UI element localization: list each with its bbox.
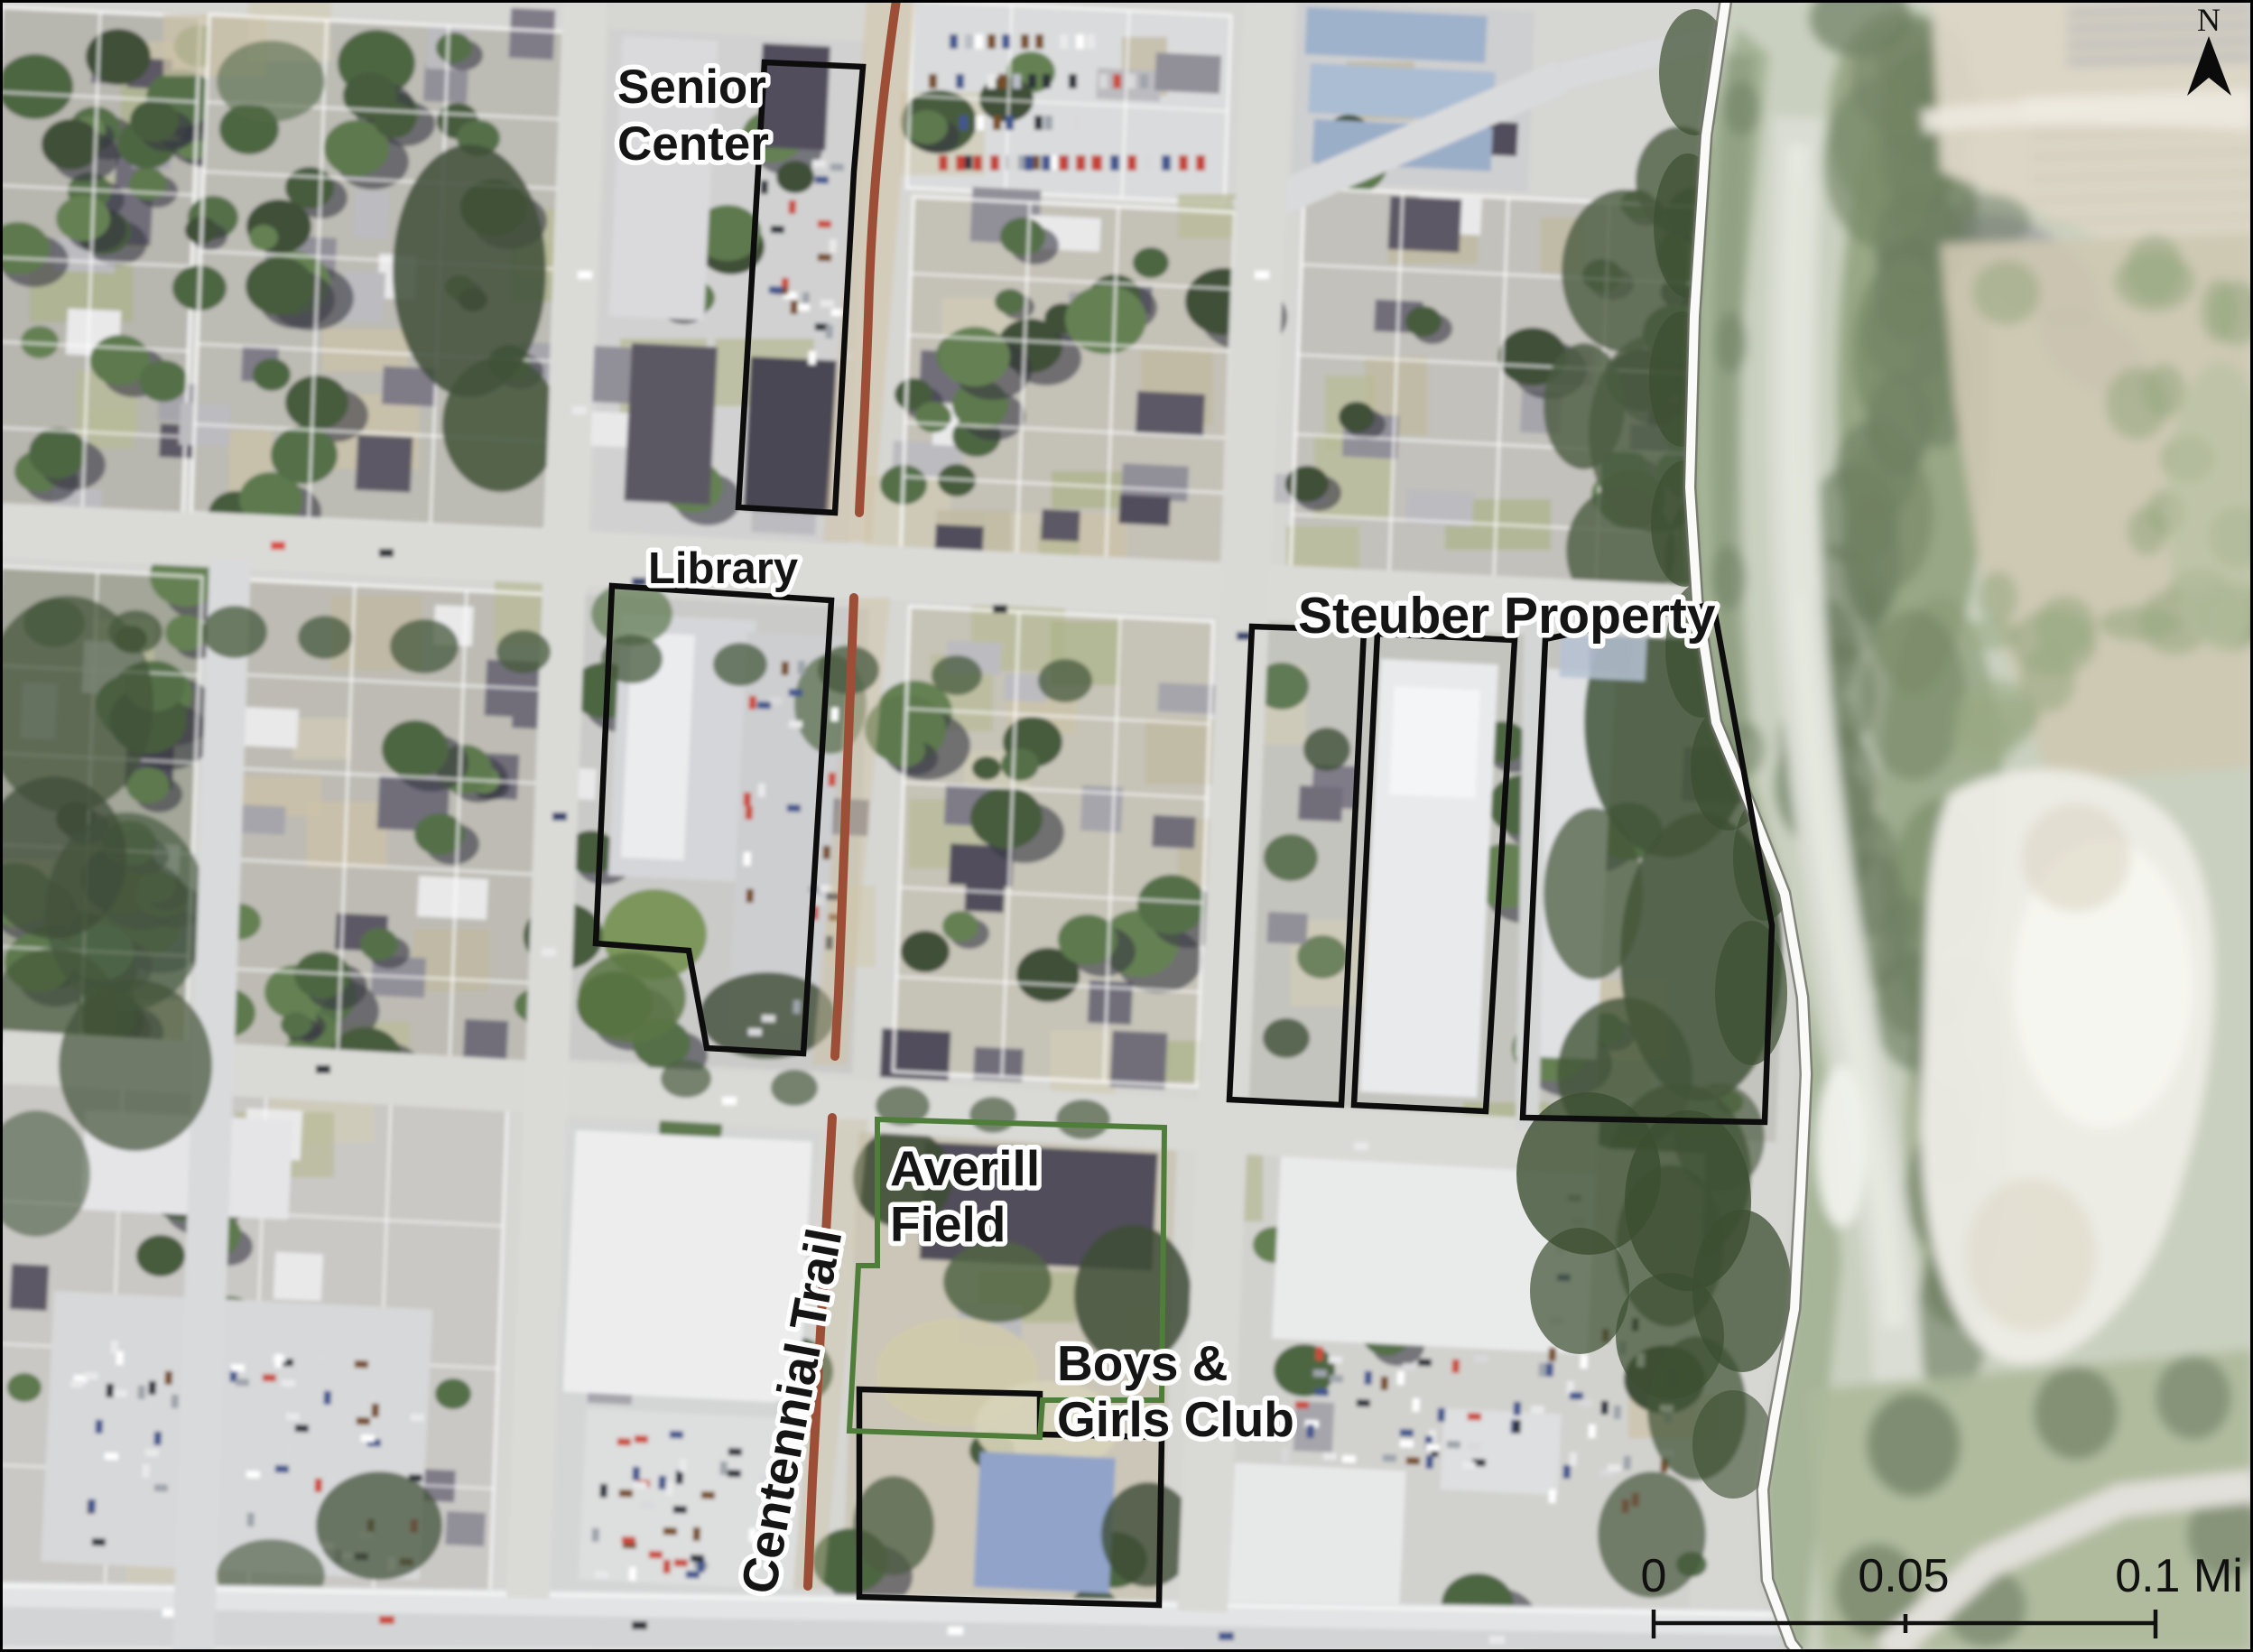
svg-text:Senior: Senior xyxy=(617,60,766,114)
svg-text:0: 0 xyxy=(1641,1550,1667,1602)
svg-text:N: N xyxy=(2197,2,2221,38)
svg-text:0.05: 0.05 xyxy=(1858,1550,1949,1602)
svg-text:Center: Center xyxy=(617,117,769,171)
svg-text:Averill: Averill xyxy=(890,1140,1040,1196)
svg-text:Library: Library xyxy=(648,544,798,593)
svg-text:Girls Club: Girls Club xyxy=(1057,1391,1294,1447)
svg-text:Steuber Property: Steuber Property xyxy=(1298,587,1716,645)
svg-text:Boys &: Boys & xyxy=(1057,1335,1228,1391)
svg-text:0.1 Mi: 0.1 Mi xyxy=(2115,1550,2243,1602)
svg-text:Field: Field xyxy=(890,1196,1006,1252)
